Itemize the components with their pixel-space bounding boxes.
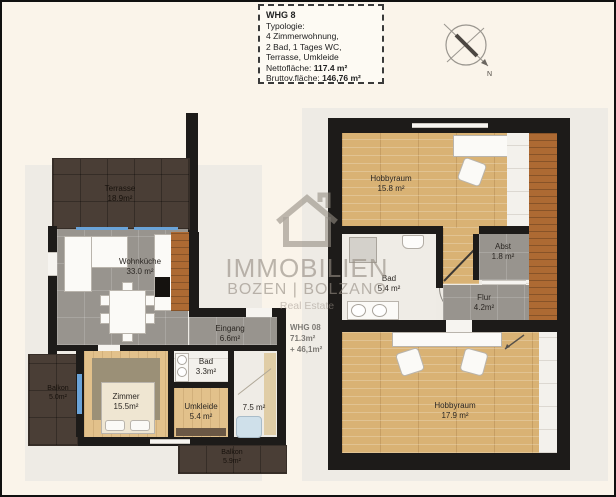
wall-left [328,118,342,470]
desk-hobby1 [453,135,509,157]
loggia-tiles-lower [539,332,557,453]
wall-abst-top [479,226,529,234]
area-annotation: WHG 08 71.3m² + 46,1m² [290,322,322,355]
room-label-abst: Abst1.8 m² [480,242,526,263]
toilet [402,235,424,249]
wall-bad2-top [342,226,442,234]
washbasin-bowl [372,304,387,317]
wall-bottom [328,453,570,470]
pencil-icon [502,332,528,352]
washbasin-bowl [351,304,366,317]
desk-hobby2 [392,332,502,347]
window-top-wall [412,123,488,128]
room-label-hobbyraum1: Hobbyraum15.8 m² [354,174,428,195]
floorplan-sheet: WHG 8 Typologie: 4 Zimmerwohnung, 2 Bad,… [0,0,616,497]
room-label-hobbyraum2: Hobbyraum17.9 m² [418,401,492,422]
hobby2-door-opening [446,320,472,332]
floorplan-level2: Hobbyraum15.8 m² Bad5.4 m² Abst1.8 m² [2,2,614,495]
wall-bad2-right [436,226,443,288]
wall-right [557,118,570,470]
shower [349,237,377,263]
room-label-bad2: Bad5.4 m² [364,274,414,295]
room-label-flur: Flur4.2m² [454,293,514,314]
loggia-wood-strip [529,133,557,330]
